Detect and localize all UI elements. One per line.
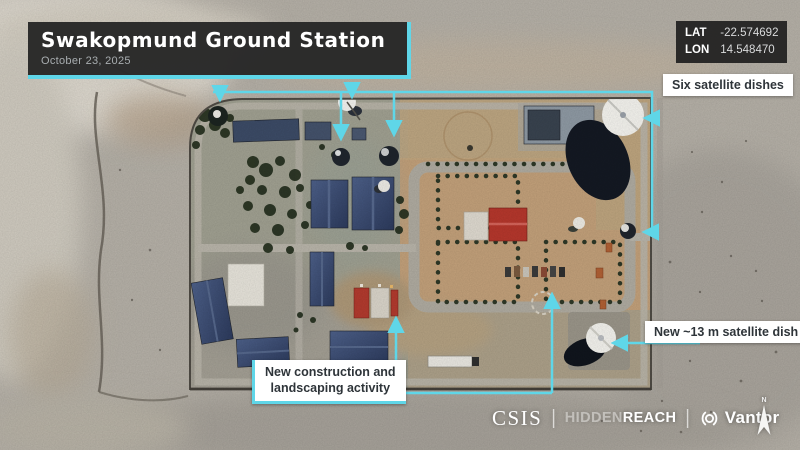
- lon-label: LON: [685, 43, 709, 59]
- hidden-reach-logo-hidden: HIDDEN: [565, 410, 623, 426]
- annotation-construction: New construction and landscaping activit…: [252, 360, 406, 404]
- north-arrow-icon: [753, 404, 775, 438]
- vantor-aperture-icon: [699, 408, 720, 429]
- logo-divider: |: [685, 406, 689, 430]
- hidden-reach-logo: HIDDENREACH: [565, 410, 677, 426]
- title-block: Swakopmund Ground Station October 23, 20…: [28, 22, 411, 79]
- csis-logo: CSIS: [492, 406, 542, 431]
- lon-value: 14.548470: [720, 43, 778, 59]
- lat-value: -22.574692: [720, 26, 778, 42]
- hidden-reach-logo-reach: REACH: [623, 410, 677, 426]
- annotation-new-dish: New ~13 m satellite dish: [645, 321, 800, 343]
- lat-label: LAT: [685, 26, 709, 42]
- logo-strip: CSIS | HIDDENREACH | Vantor: [492, 405, 779, 431]
- annotation-six-dishes: Six satellite dishes: [663, 74, 793, 96]
- logo-divider: |: [551, 406, 555, 430]
- north-indicator: N: [753, 397, 775, 443]
- image-date: October 23, 2025: [41, 55, 385, 67]
- page-title: Swakopmund Ground Station: [41, 28, 385, 52]
- north-label: N: [753, 397, 775, 404]
- annotation-construction-line1: New construction and: [265, 364, 396, 380]
- annotated-satellite-image: Swakopmund Ground Station October 23, 20…: [0, 0, 800, 450]
- annotation-construction-line2: landscaping activity: [265, 380, 396, 396]
- coordinates-box: LAT -22.574692 LON 14.548470: [676, 21, 787, 63]
